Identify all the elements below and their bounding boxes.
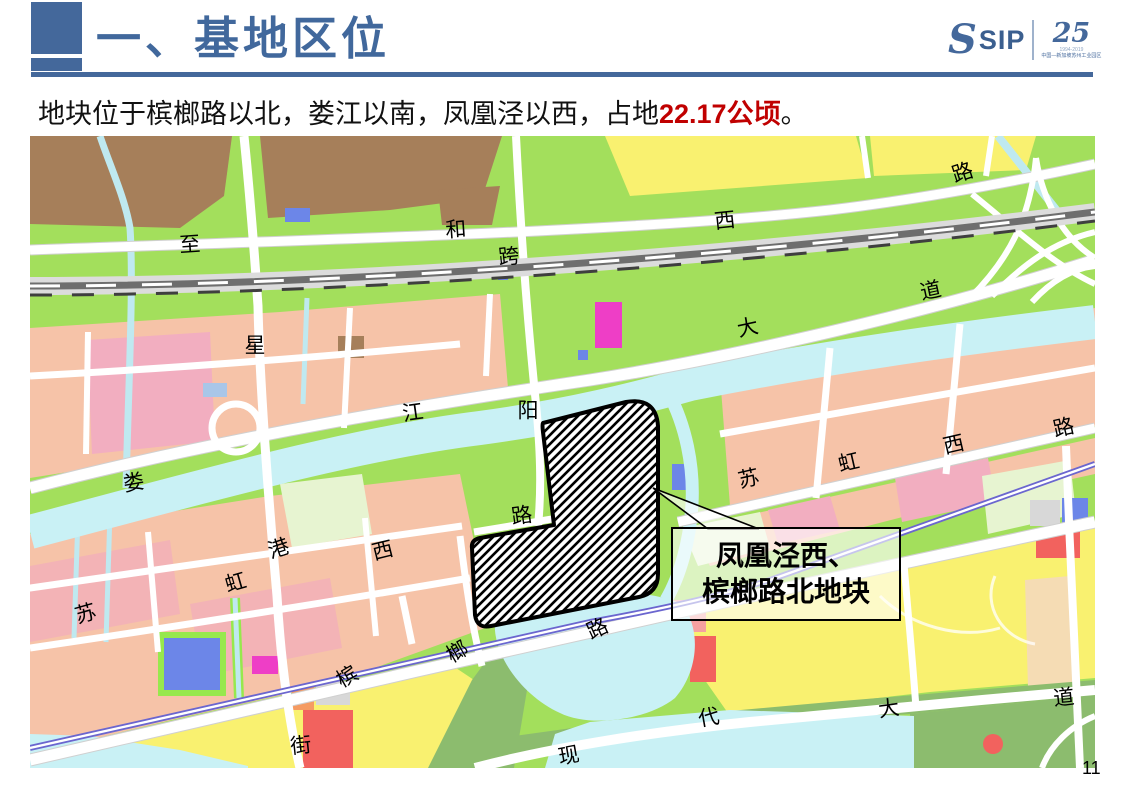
road-label: 至	[179, 233, 202, 257]
page-number: 11	[1082, 758, 1101, 779]
road-label: 大	[877, 696, 901, 722]
sip-s-icon: S	[948, 20, 977, 60]
road-label: 江	[401, 400, 425, 426]
sip-logo: S SIP 25 1994-2019 中国—新加坡苏州工业园区	[948, 16, 1101, 64]
location-description: 地块位于槟榔路以北，娄江以南，凤凰泾以西，占地22.17公顷。	[38, 92, 808, 131]
road-label: 星	[245, 335, 266, 358]
area-value: 22.17公顷	[659, 99, 781, 129]
site-location-map: 凤凰泾西、 槟榔路北地块 至和跨西路道大星江阳娄路苏虹西路港西虹苏槟榔路街现代大…	[30, 136, 1095, 768]
road-label: 路	[510, 503, 534, 529]
anniversary-org: 中国—新加坡苏州工业园区	[1041, 53, 1101, 59]
road-label: 现	[556, 743, 581, 768]
planning-map: 凤凰泾西、 槟榔路北地块 至和跨西路道大星江阳娄路苏虹西路港西虹苏槟榔路街现代大…	[30, 136, 1095, 768]
description-prefix: 地块位于槟榔路以北，娄江以南，凤凰泾以西，占地	[38, 99, 659, 129]
road-label: 阳	[518, 400, 539, 423]
road-label: 跨	[497, 245, 520, 270]
callout-line2: 槟榔路北地块	[702, 576, 870, 607]
title-accent-bar	[31, 58, 82, 71]
anniversary-25-icon: 25	[1053, 21, 1091, 47]
road-label: 街	[289, 734, 312, 759]
description-suffix: 。	[781, 99, 808, 129]
road-label: 娄	[121, 470, 146, 496]
road-label: 道	[1052, 686, 1075, 711]
page-title: 一、基地区位	[96, 2, 390, 67]
sip-logo-text: SIP	[979, 25, 1026, 56]
logo-divider	[1032, 20, 1034, 60]
callout-line1: 凤凰泾西、	[716, 540, 856, 571]
title-accent-square	[31, 2, 82, 54]
road-label: 代	[696, 705, 721, 731]
road-label: 和	[445, 218, 468, 242]
road-label: 西	[713, 209, 736, 234]
header-rule	[31, 72, 1093, 77]
